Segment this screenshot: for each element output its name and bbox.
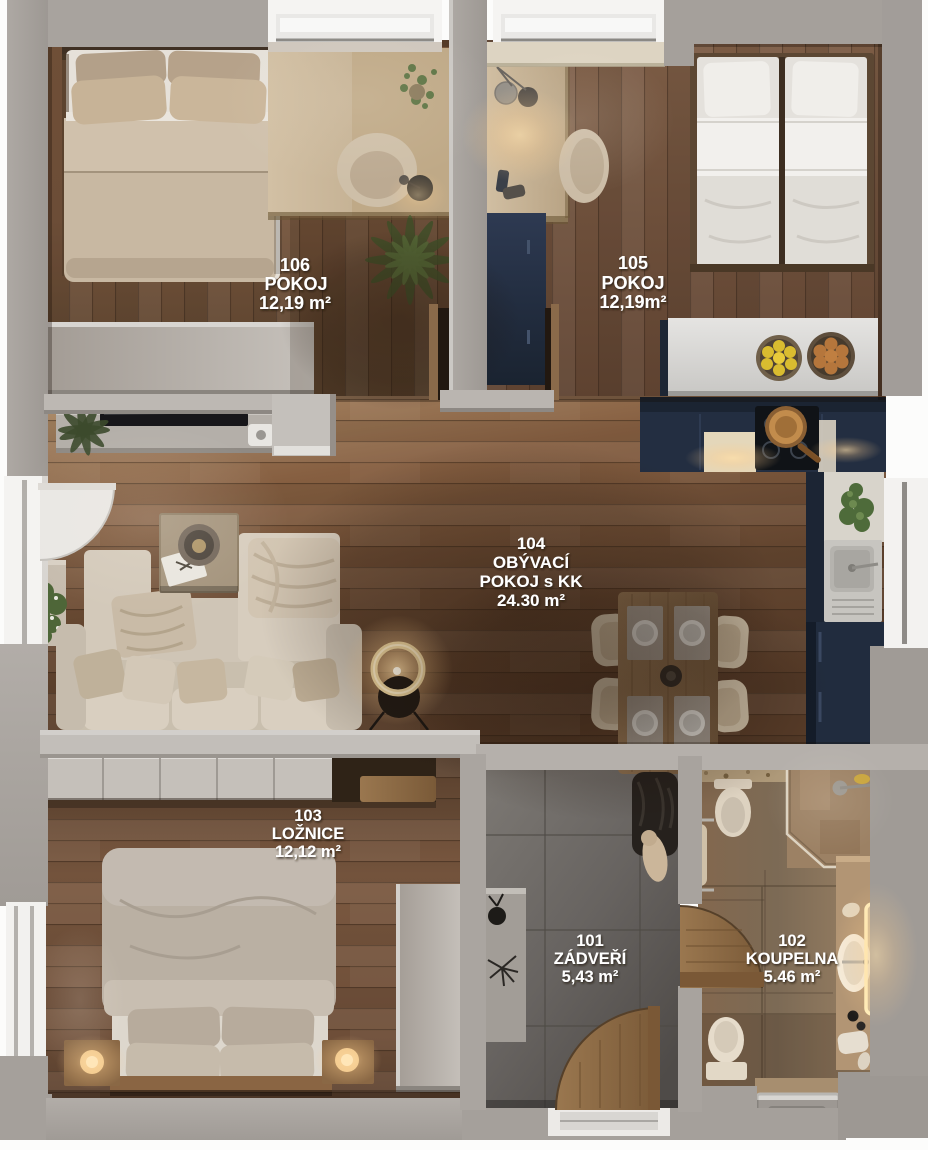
svg-text:ZÁDVEŘÍ: ZÁDVEŘÍ [554,949,627,968]
svg-text:OBÝVACÍ: OBÝVACÍ [493,553,570,572]
svg-text:12,12 m²: 12,12 m² [275,843,342,861]
svg-text:12,19m²: 12,19m² [599,292,666,312]
svg-text:POKOJ s KK: POKOJ s KK [480,572,584,591]
svg-text:5.46 m²: 5.46 m² [764,968,821,986]
svg-text:12,19 m²: 12,19 m² [259,293,331,313]
svg-text:5,43 m²: 5,43 m² [562,968,619,986]
svg-text:POKOJ: POKOJ [264,274,327,294]
svg-text:LOŽNICE: LOŽNICE [272,824,344,843]
svg-text:105: 105 [618,253,648,273]
svg-text:POKOJ: POKOJ [601,273,664,293]
svg-text:102: 102 [778,932,806,950]
svg-text:106: 106 [280,255,310,275]
svg-text:KOUPELNA: KOUPELNA [746,950,839,968]
svg-text:103: 103 [294,807,322,825]
svg-text:104: 104 [517,534,546,553]
svg-text:24.30 m²: 24.30 m² [497,591,565,610]
svg-text:101: 101 [576,932,604,950]
